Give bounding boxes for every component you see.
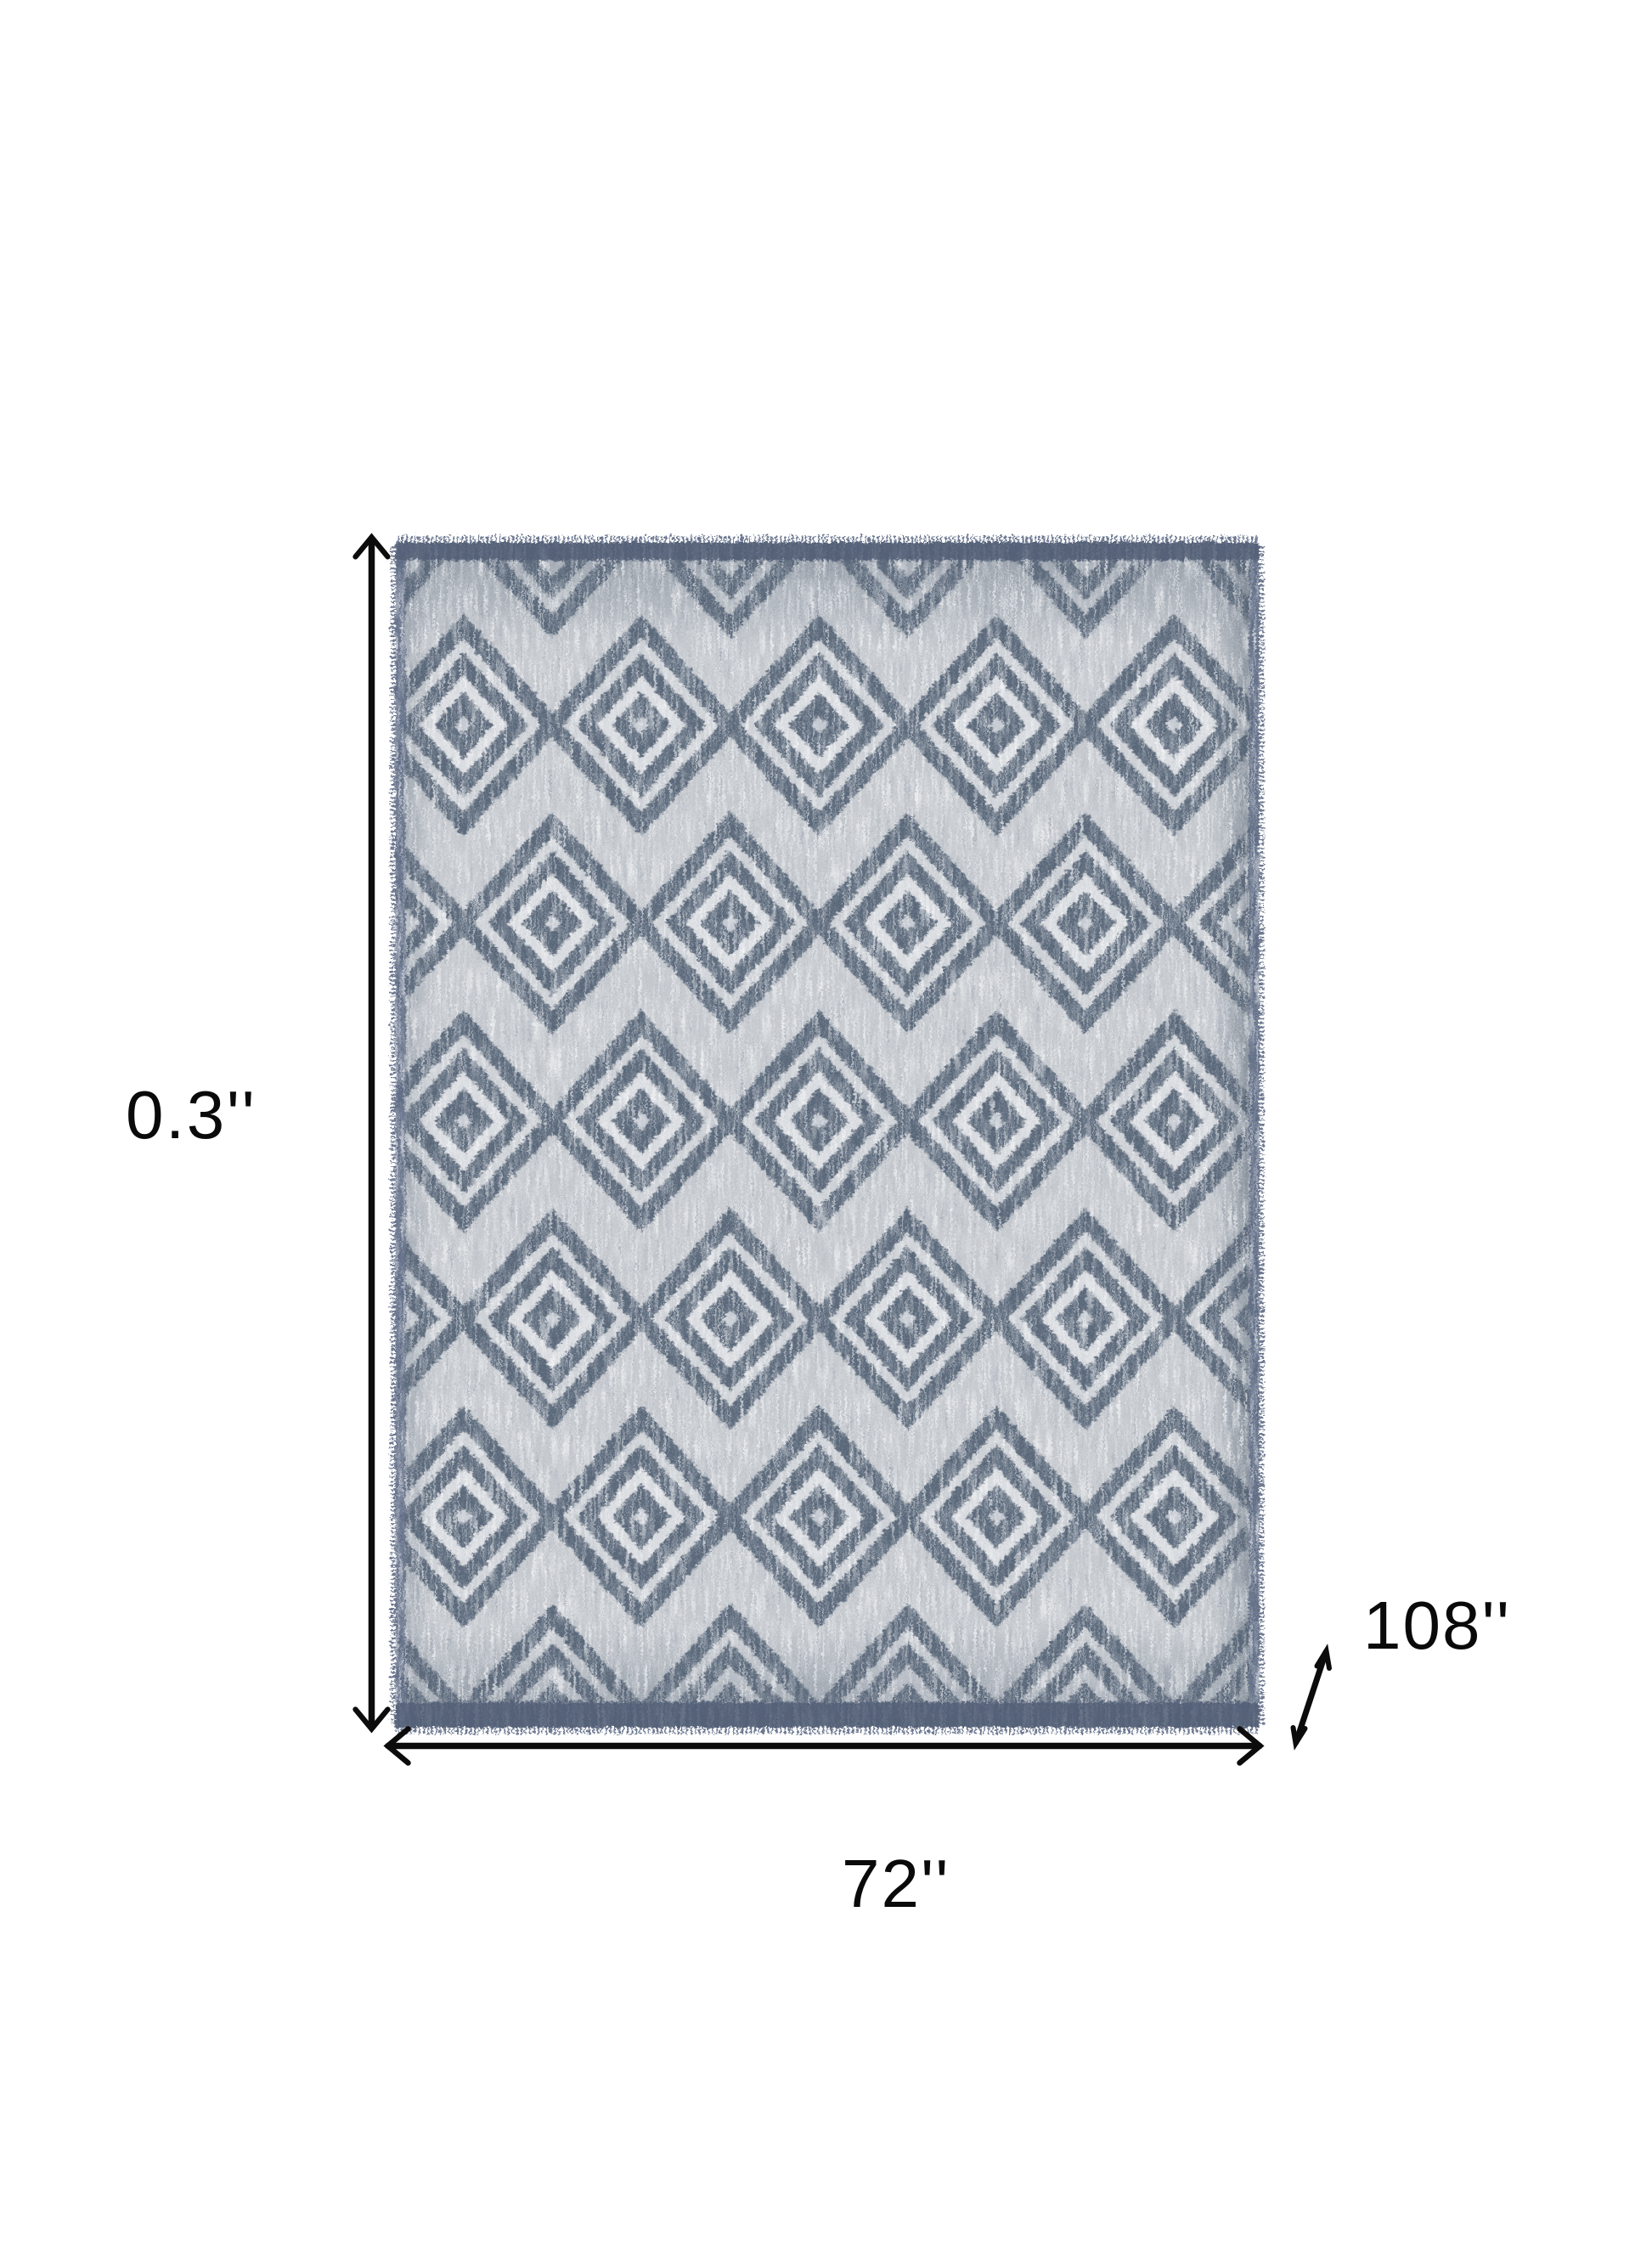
svg-text:72'': 72'': [842, 1846, 950, 1921]
svg-text:0.3'': 0.3'': [126, 1077, 257, 1153]
svg-text:108'': 108'': [1363, 1587, 1511, 1663]
